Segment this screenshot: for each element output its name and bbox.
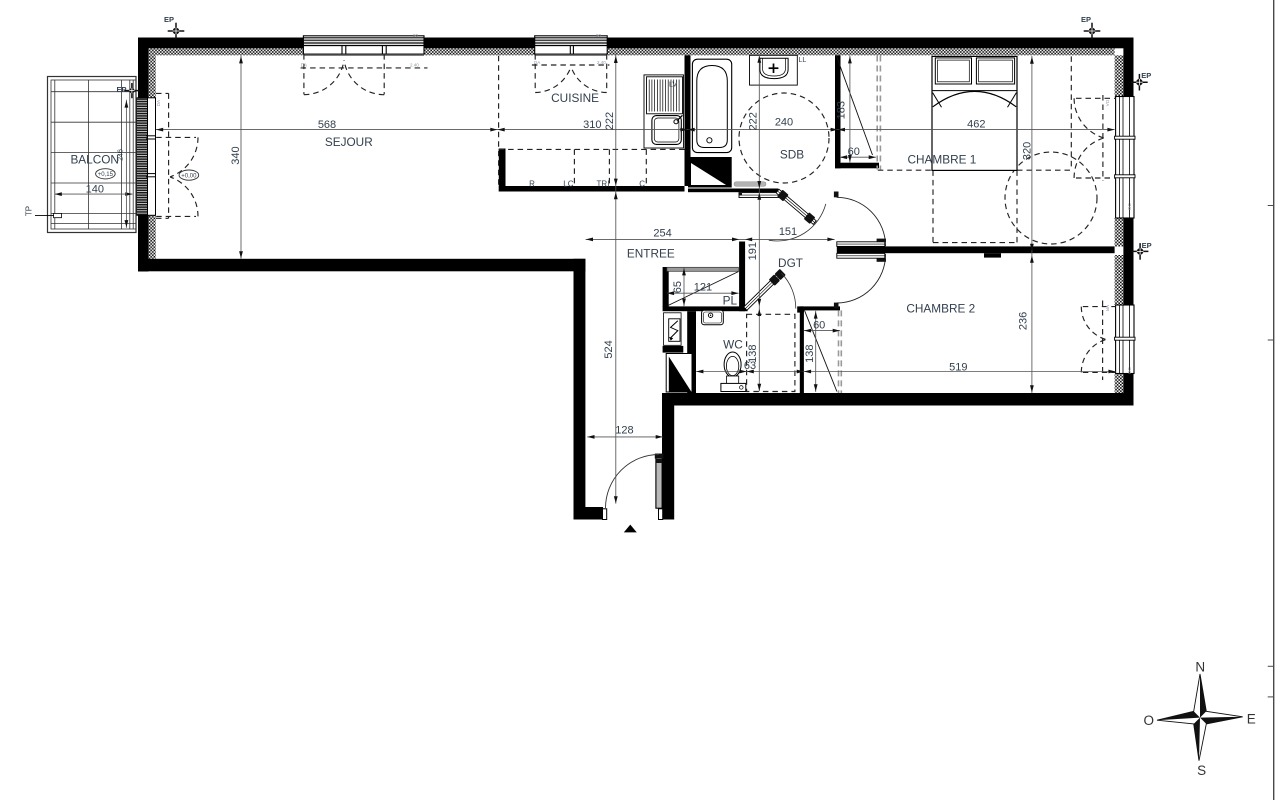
svg-text:128: 128 xyxy=(615,425,633,437)
svg-text:DA: DA xyxy=(534,60,540,65)
svg-text:151: 151 xyxy=(779,226,797,238)
svg-text:LL: LL xyxy=(799,57,807,64)
svg-text:60: 60 xyxy=(813,320,825,332)
svg-text:65: 65 xyxy=(672,281,684,293)
svg-text:SDB: SDB xyxy=(780,147,804,161)
svg-text:E: E xyxy=(1247,712,1256,727)
svg-text:LC: LC xyxy=(563,179,573,188)
svg-text:DA: DA xyxy=(156,100,161,106)
svg-text:C: C xyxy=(639,179,645,188)
svg-text:+0,00: +0,00 xyxy=(181,173,197,179)
svg-text:462: 462 xyxy=(967,118,985,130)
svg-text:DGT: DGT xyxy=(778,256,803,270)
svg-text:VR: VR xyxy=(1105,305,1110,312)
svg-text:222: 222 xyxy=(748,112,760,130)
svg-text:2.40: 2.40 xyxy=(597,60,606,65)
svg-text:BALCON: BALCON xyxy=(70,153,119,167)
svg-text:568: 568 xyxy=(318,119,336,131)
svg-text:R: R xyxy=(529,179,535,188)
svg-text:EP: EP xyxy=(1141,71,1151,80)
svg-text:GC: GC xyxy=(1127,202,1132,210)
svg-text:WC: WC xyxy=(723,338,743,352)
svg-text:236: 236 xyxy=(1017,312,1029,330)
svg-text:2.40: 2.40 xyxy=(410,63,419,68)
svg-text:EP: EP xyxy=(1142,241,1152,250)
svg-text:524: 524 xyxy=(603,340,615,358)
svg-text:TP: TP xyxy=(25,206,34,216)
svg-text:310: 310 xyxy=(583,119,601,131)
svg-text:ENTREE: ENTREE xyxy=(627,247,675,261)
svg-text:CHAMBRE 1: CHAMBRE 1 xyxy=(907,152,976,166)
svg-text:191: 191 xyxy=(747,242,759,260)
svg-text:SEJOUR: SEJOUR xyxy=(325,135,373,149)
svg-text:TRI: TRI xyxy=(597,179,610,188)
svg-text:PL: PL xyxy=(723,293,738,307)
svg-text:140: 140 xyxy=(86,183,104,195)
svg-text:+0,15: +0,15 xyxy=(98,172,114,178)
svg-text:90: 90 xyxy=(596,33,602,38)
svg-text:183: 183 xyxy=(836,101,848,119)
svg-text:121: 121 xyxy=(694,282,712,294)
svg-text:340: 340 xyxy=(230,146,242,164)
svg-text:138: 138 xyxy=(747,345,759,363)
svg-text:DA: DA xyxy=(1105,100,1110,106)
svg-text:90: 90 xyxy=(413,33,419,38)
svg-text:LV: LV xyxy=(669,82,677,89)
svg-text:DA: DA xyxy=(301,63,307,68)
svg-text:60: 60 xyxy=(848,146,860,158)
svg-text:EP: EP xyxy=(1081,15,1091,24)
svg-text:N: N xyxy=(1195,660,1205,675)
svg-text:S: S xyxy=(1197,763,1206,778)
svg-text:EP: EP xyxy=(116,85,126,94)
svg-text:GC: GC xyxy=(1127,366,1132,374)
svg-text:EP: EP xyxy=(164,15,174,24)
svg-text:519: 519 xyxy=(949,362,967,374)
svg-text:CHAMBRE 2: CHAMBRE 2 xyxy=(906,301,975,315)
svg-text:222: 222 xyxy=(604,112,616,130)
svg-text:CUISINE: CUISINE xyxy=(551,91,599,105)
svg-text:O: O xyxy=(1143,713,1154,728)
svg-text:138: 138 xyxy=(804,345,816,363)
svg-text:240: 240 xyxy=(775,117,793,129)
svg-text:254: 254 xyxy=(653,227,671,239)
svg-text:320: 320 xyxy=(1022,142,1034,160)
